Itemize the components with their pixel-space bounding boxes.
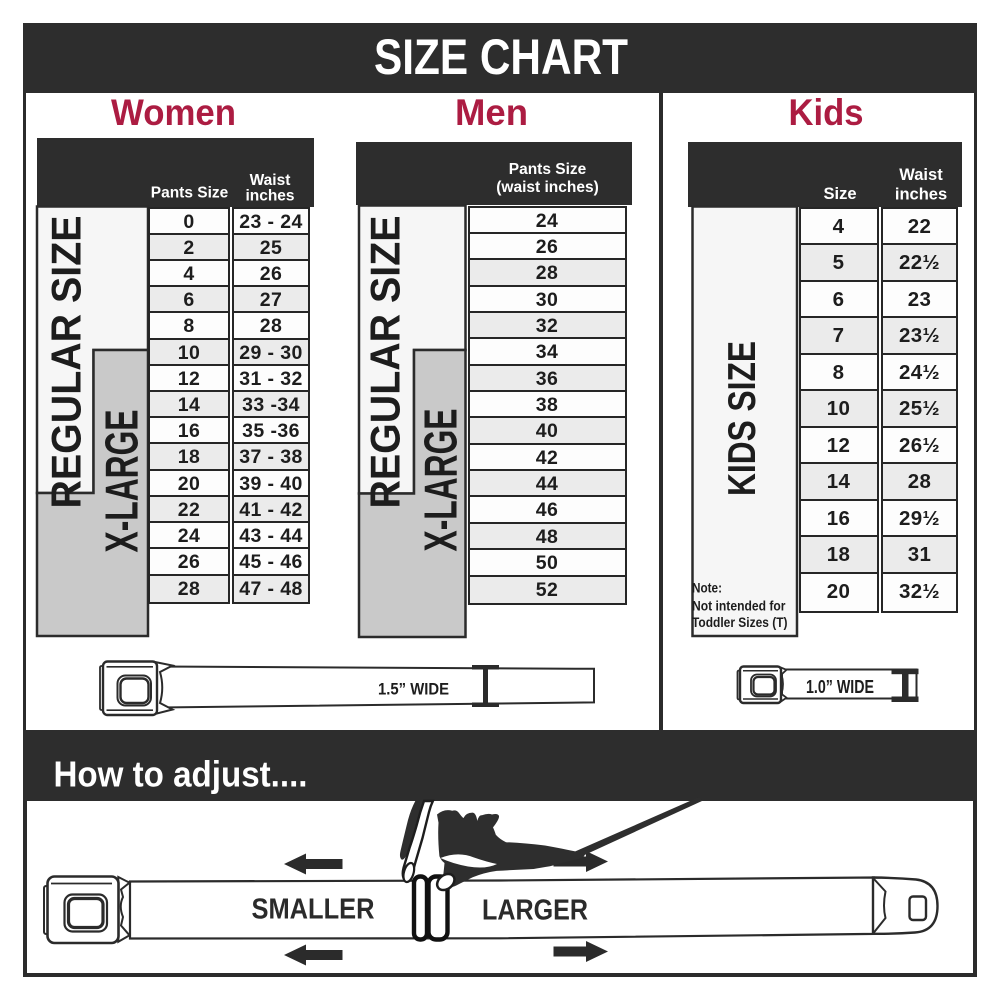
svg-text:SMALLER: SMALLER (252, 894, 375, 926)
svg-text:LARGER: LARGER (482, 895, 588, 927)
svg-text:How to adjust....: How to adjust.... (54, 754, 308, 795)
